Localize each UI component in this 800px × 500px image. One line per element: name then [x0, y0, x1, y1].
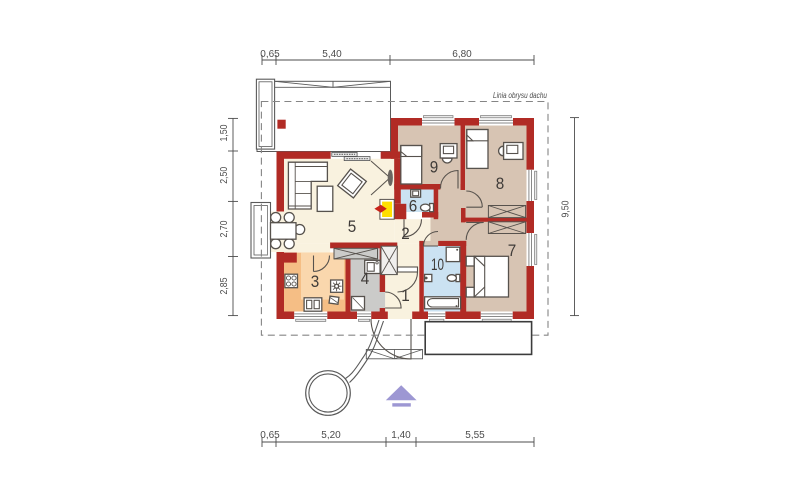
svg-text:5,40: 5,40 [322, 49, 342, 60]
svg-text:1: 1 [401, 286, 410, 305]
svg-text:3: 3 [311, 272, 320, 291]
svg-text:10: 10 [431, 255, 444, 274]
svg-text:1,40: 1,40 [391, 430, 411, 441]
svg-text:0,65: 0,65 [260, 49, 280, 60]
svg-text:2,70: 2,70 [219, 220, 230, 237]
svg-text:5,20: 5,20 [321, 430, 341, 441]
svg-text:9: 9 [430, 158, 439, 177]
svg-text:5: 5 [348, 217, 357, 236]
svg-text:7: 7 [508, 241, 517, 260]
svg-text:2,85: 2,85 [219, 277, 230, 294]
svg-text:2: 2 [401, 224, 410, 243]
svg-text:9,50: 9,50 [561, 200, 572, 217]
svg-text:4: 4 [361, 269, 370, 288]
svg-text:1,50: 1,50 [219, 124, 230, 141]
svg-text:0,65: 0,65 [260, 430, 280, 441]
svg-text:2,50: 2,50 [219, 166, 230, 183]
svg-text:5,55: 5,55 [465, 430, 485, 441]
svg-text:8: 8 [496, 174, 505, 193]
svg-text:6,80: 6,80 [452, 49, 472, 60]
svg-text:6: 6 [409, 197, 418, 216]
svg-text:Linia obrysu dachu: Linia obrysu dachu [493, 91, 547, 100]
